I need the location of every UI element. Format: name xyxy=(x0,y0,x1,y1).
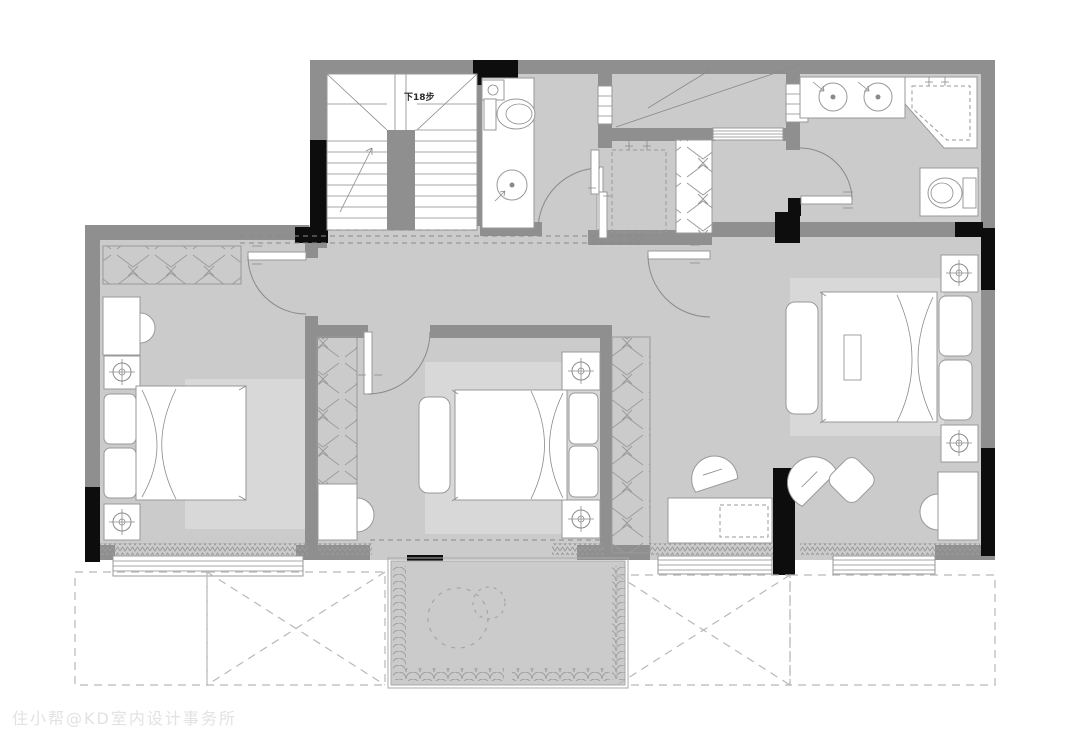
pillow xyxy=(104,448,136,498)
balcony-floor xyxy=(391,561,625,685)
vanity-sink-2-drain xyxy=(876,95,881,100)
watermark-text: 住小帮@KD室内设计事务所 xyxy=(12,709,237,728)
bench-master-bedroom xyxy=(786,302,818,414)
wall-void-west-a xyxy=(598,60,612,86)
planter-east xyxy=(612,566,625,680)
window-master-b xyxy=(833,556,935,574)
balcony-center xyxy=(388,558,628,688)
stair-core xyxy=(387,130,415,230)
wall-leftroom-east-stub xyxy=(305,242,318,258)
wall-mid-master-divider xyxy=(600,325,612,560)
desk-middle-bedroom xyxy=(318,484,357,540)
nightstand-lamp-icon xyxy=(941,425,978,462)
nightstand-lamp-icon xyxy=(104,356,140,389)
bed-mattress xyxy=(455,390,567,500)
wall-void-west-b xyxy=(598,122,612,148)
bed-left-bedroom xyxy=(104,386,246,500)
column-bathdoor xyxy=(788,198,801,216)
wall-midroom-north-a xyxy=(318,325,368,338)
sill-middle-a xyxy=(318,543,372,555)
wall-masterbath-west-a xyxy=(786,60,800,85)
column-east-upper xyxy=(981,228,995,290)
pillow xyxy=(569,393,598,444)
column-east-lower xyxy=(981,448,995,556)
pillow xyxy=(939,296,972,356)
wardrobe-strip-top-pattern xyxy=(676,140,712,233)
wall-north xyxy=(310,60,995,74)
sliding-door-panel-1 xyxy=(591,150,599,194)
sill-left-bedroom xyxy=(100,543,308,555)
wardrobe-master-bedroom xyxy=(612,337,650,553)
pillow xyxy=(939,360,972,420)
window-void-south xyxy=(713,128,783,140)
sill-master-a xyxy=(650,543,773,555)
sliding-door-panel-2 xyxy=(599,192,607,238)
nightstand-lamp-icon xyxy=(104,504,140,540)
planter-south-a xyxy=(406,668,504,681)
vanity-sink-1-drain xyxy=(831,95,836,100)
wall-shower-north xyxy=(612,128,715,141)
wall-leftroom-east xyxy=(305,316,318,560)
bed-mattress xyxy=(136,386,246,500)
leftroom-door-leaf xyxy=(248,252,306,260)
bed-middle-bedroom xyxy=(452,390,598,501)
stair-label: 下18步 xyxy=(404,91,435,103)
master-toilet-tank xyxy=(963,178,976,208)
planter-south-b xyxy=(512,668,610,681)
wall-masterbath-west-b xyxy=(786,121,800,150)
wall-left-bedroom-north xyxy=(85,225,309,240)
pillow xyxy=(104,394,136,444)
small-sink xyxy=(482,80,504,100)
window-master-a xyxy=(658,556,772,574)
master-door-leaf xyxy=(648,251,710,259)
midroom-door-leaf xyxy=(364,332,372,394)
toilet-bowl-icon xyxy=(497,99,535,129)
stairwell: 下18步 xyxy=(327,74,477,230)
desk-left-bedroom xyxy=(103,297,140,355)
masterbath-door-leaf xyxy=(801,196,852,204)
nightstand-lamp-icon xyxy=(941,255,978,292)
wardrobe-middle-bedroom xyxy=(317,337,357,489)
roof-x-right xyxy=(617,575,790,685)
planter-west xyxy=(393,566,406,680)
master-toilet-bowl-icon xyxy=(928,178,962,208)
sill-middle-b xyxy=(552,543,604,555)
floor-plan-svg: 下18步 xyxy=(0,0,1080,744)
bed-mattress xyxy=(822,292,937,422)
column-west-south xyxy=(85,487,100,562)
toilet-tank xyxy=(484,99,496,130)
column-corridor xyxy=(775,212,800,243)
nightstand-lamp-icon xyxy=(562,352,600,390)
floor-plan-page: 下18步 xyxy=(0,0,1080,744)
nightstand-lamp-icon xyxy=(562,500,600,538)
pillow xyxy=(569,446,598,497)
roof-box-plain-right xyxy=(790,575,995,685)
basin-drain xyxy=(510,183,515,188)
bench-middle-bedroom xyxy=(419,397,450,493)
column-masterbath-south xyxy=(955,222,983,237)
window-void-west xyxy=(598,86,612,124)
sill-master-b xyxy=(800,543,980,555)
wardrobe-left-bedroom xyxy=(103,246,241,284)
wall-master-north xyxy=(712,222,983,237)
column-stairs-west xyxy=(310,140,327,235)
wall-midroom-north-b xyxy=(430,325,607,338)
dressing-desk-master xyxy=(938,472,978,540)
column-hall-west xyxy=(295,227,328,243)
roof-x-left xyxy=(207,572,385,685)
roof-box-plain-left xyxy=(75,572,207,685)
